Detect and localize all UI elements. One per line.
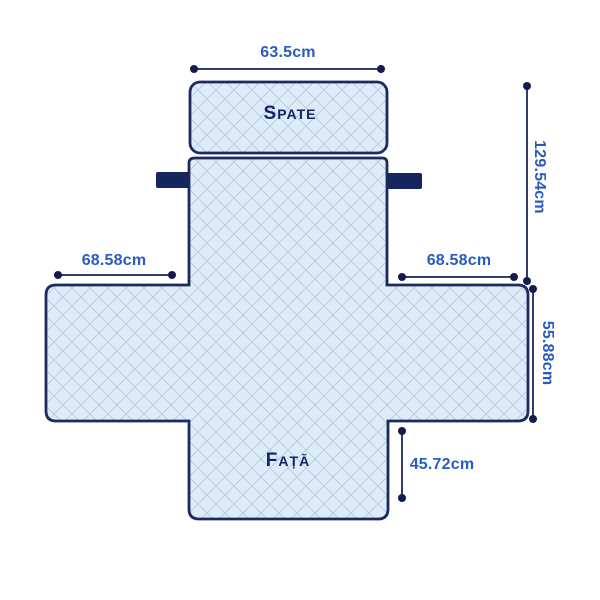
dim-dot [523, 277, 531, 285]
diagram-canvas [0, 0, 600, 600]
dim-dot [398, 494, 406, 502]
dim-dot [529, 285, 537, 293]
dim-dot [398, 427, 406, 435]
dim-front-height [398, 427, 406, 502]
dim-top-width [190, 65, 385, 73]
dim-label-top-width: 63.5cm [260, 44, 315, 62]
dim-dot [529, 415, 537, 423]
dim-dot [168, 271, 176, 279]
dim-label-seat-side-height: 55.88cm [538, 321, 556, 386]
dim-dot [54, 271, 62, 279]
dim-left-arm-width [54, 271, 176, 279]
dim-right-arm-width [398, 273, 518, 281]
front-label: FAȚĂ [266, 450, 310, 472]
dim-label-left-arm-width: 68.58cm [82, 252, 147, 270]
right-strap [386, 173, 422, 189]
dim-label-back-height: 129.54cm [530, 140, 548, 214]
dim-dot [510, 273, 518, 281]
dim-seat-side-height [529, 285, 537, 423]
dim-dot [377, 65, 385, 73]
sofa-cover-dimension-diagram: 63.5cm 129.54cm 68.58cm 68.58cm 55.88cm … [0, 0, 600, 600]
back-label: SPATE [264, 103, 317, 125]
dim-dot [523, 82, 531, 90]
dim-label-right-arm-width: 68.58cm [427, 252, 492, 270]
dim-dot [190, 65, 198, 73]
dim-dot [398, 273, 406, 281]
left-strap [156, 172, 192, 188]
dim-label-front-height: 45.72cm [410, 456, 475, 474]
